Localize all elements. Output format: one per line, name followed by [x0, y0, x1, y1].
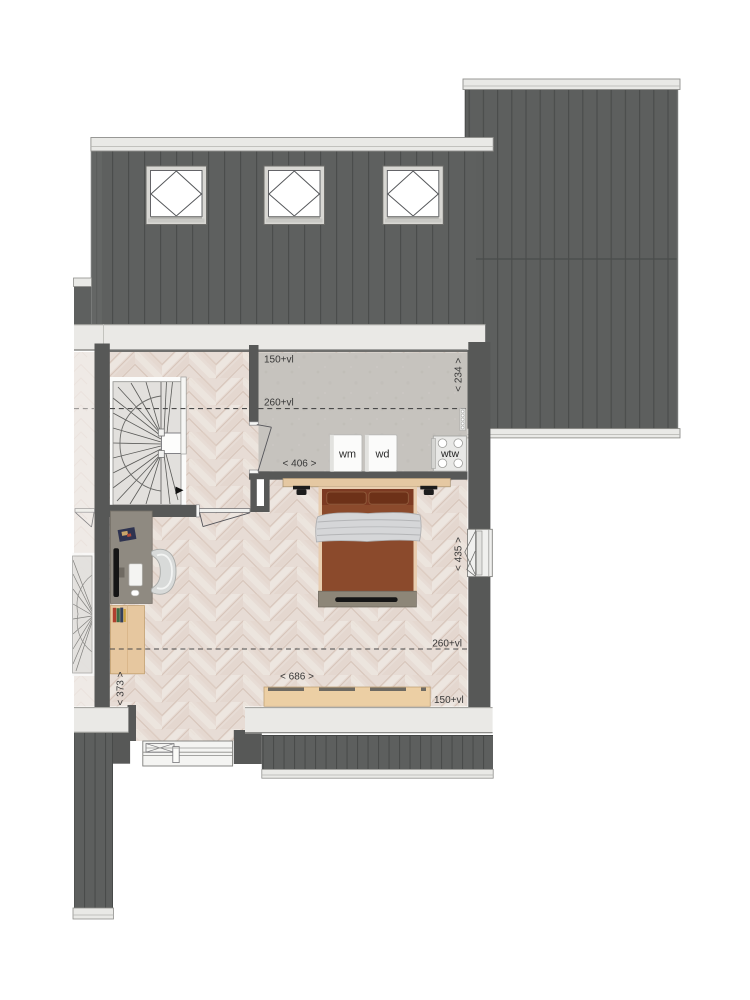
svg-text:260+vl: 260+vl	[264, 398, 294, 409]
svg-text:wtw: wtw	[440, 448, 460, 460]
svg-text:< 435 >: < 435 >	[454, 537, 465, 571]
svg-text:wm: wm	[338, 449, 356, 461]
svg-text:< 373 >: < 373 >	[116, 671, 127, 705]
svg-text:260+vl: 260+vl	[432, 639, 462, 650]
svg-text:150+vl: 150+vl	[434, 695, 464, 706]
svg-text:150+vl: 150+vl	[264, 355, 294, 366]
svg-text:< 686 >: < 686 >	[280, 672, 314, 683]
svg-text:wd: wd	[374, 449, 389, 461]
svg-text:< 234 >: < 234 >	[454, 358, 465, 392]
svg-text:< 406 >: < 406 >	[283, 459, 317, 470]
